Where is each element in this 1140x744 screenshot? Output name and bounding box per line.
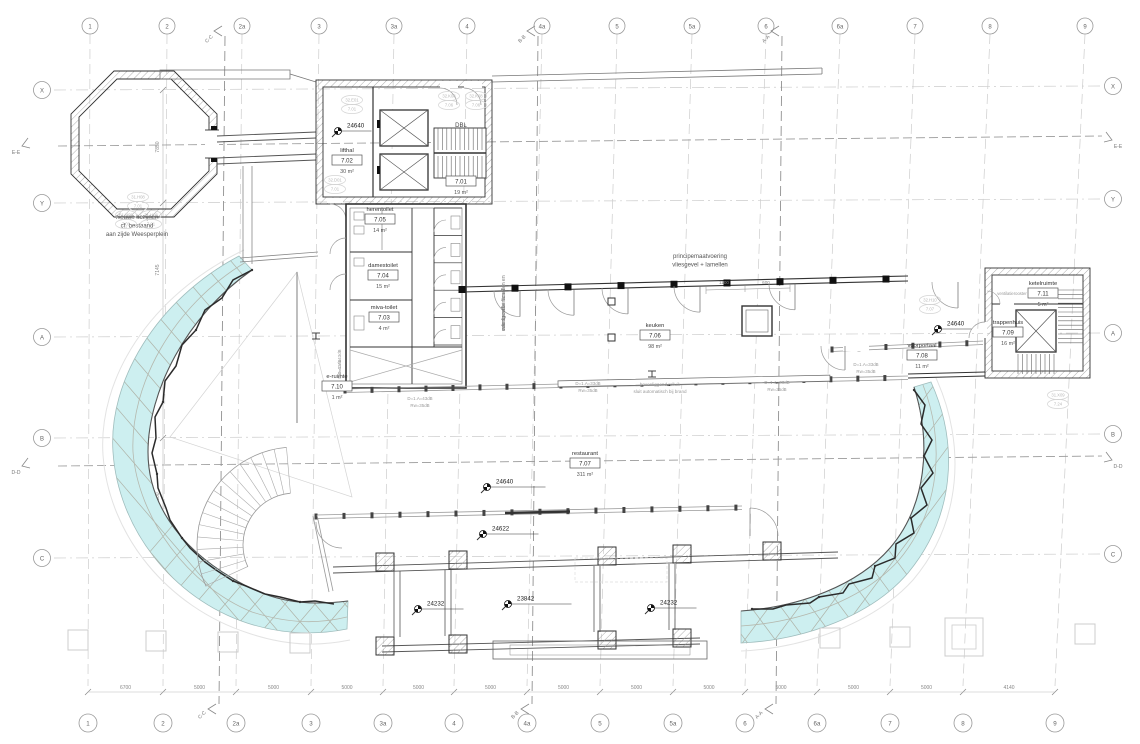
foundation-pad (218, 632, 238, 652)
floorplan-canvas: 11222a2a333a3a444a4a555a5a666a6a77889967… (0, 0, 1140, 744)
detail-marker: 24640 (932, 321, 972, 336)
room-code: 7.08 (916, 354, 928, 360)
dim-value: 5000 (194, 685, 205, 691)
mullion-tick (478, 384, 481, 390)
mullion-tick (650, 506, 653, 512)
door-arc (674, 286, 700, 312)
mullion-tick (482, 510, 485, 516)
marker-quadrant (487, 484, 491, 488)
tag-room: 7.06 (445, 103, 454, 108)
detail-marker: 23842 (502, 596, 572, 611)
grid-bubble-label: 2a (233, 721, 240, 728)
marker-quadrant (483, 531, 487, 535)
grid-bubble-label: 2 (161, 721, 165, 728)
grid-bubble-label: 7 (888, 721, 892, 728)
section-arrow (22, 138, 30, 148)
stair-tread (286, 447, 290, 493)
note-line: Rw=35dB (856, 369, 875, 374)
grid-bubble-label: 6a (837, 24, 844, 30)
marker-number: 23842 (517, 596, 535, 603)
grid-line-vertical (745, 34, 766, 686)
mullion-tick (505, 384, 508, 390)
tag-code: 32.K08 (469, 94, 483, 99)
dim-value: 4140 (1003, 685, 1014, 691)
section-arrow (1104, 452, 1112, 462)
note-line: D=1.A=33dB (575, 381, 600, 386)
note-line: Rw=35dB (410, 403, 429, 408)
stair-tread (262, 453, 277, 496)
grid-bubble-label: 5a (689, 24, 696, 30)
diagrid-line (280, 190, 700, 680)
mullion-tick (938, 341, 941, 347)
pavilion-column (763, 542, 781, 560)
diagrid-line (1000, 350, 1140, 700)
room-code: 7.02 (341, 159, 353, 165)
wall-column (512, 285, 519, 292)
marker-number: 24622 (492, 526, 510, 533)
mullion-tick (342, 513, 345, 519)
annotation-note: 600 (762, 280, 770, 285)
dim-value: 5000 (341, 685, 352, 691)
tag-room: 7.01 (147, 222, 156, 227)
section-arrow (22, 458, 30, 468)
note-line: 600 (762, 280, 770, 285)
grid-bubble-label: C (40, 556, 45, 562)
pavilion-column (376, 637, 394, 655)
dim-value: 5000 (775, 685, 786, 691)
grid-bubble-label: A (40, 335, 44, 341)
room-label: lifthal7.0230 m² (332, 148, 362, 175)
facade-node (874, 565, 876, 567)
detail-marker: 24622 (477, 526, 539, 541)
grid-bubble-label: 3a (391, 24, 398, 30)
stair-type-label: DBL (455, 123, 467, 129)
room-area: 1 m² (332, 395, 343, 401)
grid-bubble-label: 3a (380, 721, 387, 728)
marker-quadrant (651, 605, 655, 609)
section-label: E-E (1114, 144, 1123, 150)
finish-tag: 31.X097.24 (1048, 390, 1069, 408)
pavilion-column (598, 631, 616, 649)
room-code: 7.11 (1037, 292, 1049, 298)
mullion-tick (856, 376, 859, 382)
stair-tread (214, 490, 252, 516)
tag-room: 7.24 (1054, 402, 1063, 407)
grid-line-vertical (88, 34, 90, 686)
room-area: 30 m² (340, 169, 354, 175)
wall-column (830, 277, 837, 284)
note-line: sluit automatisch bij brand (633, 389, 687, 394)
room-name: trappenhuis (993, 320, 1023, 326)
grid-bubble-label: 8 (961, 721, 965, 728)
note-line: D=1.A=33dB (764, 380, 789, 385)
room-label: voorportaal7.0811 m² (907, 343, 937, 370)
facade-node (232, 580, 234, 582)
room-name: ketelruimte (1029, 281, 1057, 287)
finish-tag: 31.H087.01 (128, 192, 149, 210)
stair-tread (230, 472, 260, 506)
entry-opening (843, 343, 869, 351)
grid-bubble-label: 4a (539, 24, 546, 30)
room-name: keuken (646, 323, 665, 329)
tag-room: 7.01 (134, 204, 143, 209)
room-area: 19 m² (454, 190, 468, 196)
note-line: Rw=43dB (337, 359, 342, 378)
section-line (776, 36, 782, 704)
marker-number: 24232 (660, 600, 678, 607)
room-code: 7.09 (1002, 331, 1014, 337)
room-label: keuken7.0698 m² (640, 323, 670, 350)
pavilion-columns (376, 542, 781, 655)
finish-tag: 32.K087.06 (466, 91, 487, 109)
grid-line-vertical (1055, 34, 1085, 686)
room-code: 7.01 (455, 180, 467, 186)
facade-node (910, 517, 912, 519)
tag-room: 7.07 (926, 307, 935, 312)
wall-column (565, 283, 572, 290)
section-label: D-D (1114, 464, 1123, 470)
section-label: B-B (517, 34, 528, 45)
room-code: 7.10 (331, 385, 343, 391)
floorplan-page: 11222a2a333a3a444a4a555a5a666a6a77889967… (0, 0, 1140, 744)
room-code: 7.03 (378, 316, 390, 322)
grid-line-horizontal (54, 199, 1100, 203)
annotation-note: D=1.A=43dBRw=43dB (337, 349, 342, 378)
facade-node (818, 596, 820, 598)
note-line: bovenliggend rolluik (640, 382, 681, 387)
foundation-pads (68, 618, 1095, 656)
tag-code: 31.H08 (144, 213, 158, 218)
foundation-pad (952, 625, 976, 649)
room-area: 311 m² (577, 472, 594, 478)
tag-code: 32.E01 (345, 98, 359, 103)
dim-value: 6700 (120, 685, 131, 691)
stair-tread (240, 464, 266, 502)
mullion-tick (883, 375, 886, 381)
kitchen-wing (459, 276, 959, 341)
foundation-pad (820, 628, 840, 648)
grid-bubble-label: X (1111, 84, 1115, 90)
grid-bubble-label: 5 (598, 721, 602, 728)
pavilion-column (673, 545, 691, 563)
dim-value: 7145 (155, 264, 161, 275)
diagrid-line (0, 190, 200, 680)
pavilion-column (449, 635, 467, 653)
facade-node (251, 269, 253, 271)
wall-column (618, 282, 625, 289)
mullion-tick (370, 387, 373, 393)
section-arrow (765, 704, 773, 714)
stair-tread (203, 513, 246, 528)
facade-node (156, 473, 158, 475)
mullion-tick (884, 344, 887, 350)
section-arrow (521, 704, 529, 714)
octagon-tower (71, 71, 219, 217)
dim-value: 7850 (155, 141, 161, 152)
tag-code: 31.X09 (1051, 393, 1065, 398)
finish-tags: 31.H087.0131.H087.0131.H087.0132.K087.06… (116, 91, 1069, 408)
mullion-tick (965, 340, 968, 346)
marker-number: 24232 (427, 601, 445, 608)
grid-bubble-label: C (1111, 552, 1116, 558)
section-arrow (1104, 132, 1112, 142)
room-area: 4 m² (379, 326, 390, 332)
toilet-block (330, 204, 466, 388)
grid-bubble-label: 2a (239, 24, 246, 30)
pavilion-column (673, 629, 691, 647)
tag-room: 7.01 (348, 107, 357, 112)
grid-bubble-label: 6 (743, 721, 747, 728)
grid-bubble-label: Y (40, 201, 44, 207)
room-label: restaurant7.07311 m² (570, 451, 600, 478)
mullion-tick (706, 505, 709, 511)
stair-tread (221, 480, 256, 510)
room-area: 11 m² (915, 364, 929, 370)
door-arc (548, 289, 574, 315)
annotation-note: D=1.A=43dBRw=35dB (407, 396, 432, 408)
annotation-note: 1100 (719, 280, 729, 285)
grid-bubble-label: 1 (86, 721, 90, 728)
section-arrow (214, 26, 222, 36)
stair-stringer (243, 493, 290, 567)
restaurant-south-doors (313, 508, 778, 592)
grid-line-vertical (673, 34, 692, 686)
room-name: voorportaal (907, 343, 936, 349)
room-code: 7.04 (377, 274, 389, 280)
tower-door-opening (205, 130, 219, 158)
annotation-note: bovenliggend rolluiksluit automatisch bi… (633, 382, 687, 394)
dim-value: 5000 (485, 685, 496, 691)
grid-line-horizontal (54, 333, 1100, 337)
note-line: D=1.A=43dB (407, 396, 432, 401)
note-line: aan zijde Weesperplein (106, 232, 168, 238)
pavilion-column (449, 551, 467, 569)
dim-value: 5000 (268, 685, 279, 691)
annotation-note: D=1.A=33dBRw=35dB (853, 362, 878, 374)
dim-value: 5000 (413, 685, 424, 691)
diagrid-line (590, 350, 850, 700)
note-line: principemaatvoering (673, 254, 727, 260)
dim-value: 5000 (558, 685, 569, 691)
mullion-tick (370, 512, 373, 518)
detail-marker: 24640 (332, 123, 372, 138)
grid-bubble-label: 5a (670, 721, 677, 728)
door-arc (769, 284, 795, 310)
diagrid-line (940, 350, 1140, 700)
grid-line-vertical (600, 34, 617, 686)
foundation-pad (945, 618, 983, 656)
room-code: 7.06 (649, 334, 661, 340)
detail-marker: 24232 (645, 600, 697, 615)
mullion-tick (426, 511, 429, 517)
wall-segment (505, 512, 570, 514)
annotation-note: nieuwe kozijnencf. bestaandaan zijde Wee… (106, 215, 168, 238)
grid-bubble-label: X (40, 88, 44, 94)
grid-bubble-label: A (1111, 331, 1115, 337)
tag-room: 7.01 (331, 187, 340, 192)
room-name: herentoilet (366, 207, 393, 213)
section-label: A-A (761, 34, 772, 45)
grid-bubble-label: 9 (1053, 721, 1057, 728)
mullion-tick (398, 512, 401, 518)
dumbwaiter (742, 306, 772, 336)
note-line: 1100 (719, 280, 729, 285)
stair-tread (207, 501, 248, 522)
mullion-tick (397, 386, 400, 392)
room-name: damestoilet (368, 263, 398, 269)
mullion-tick (451, 385, 454, 391)
room-area: 14 m² (373, 228, 387, 234)
dim-value: 5000 (703, 685, 714, 691)
room-code: 7.07 (579, 462, 591, 468)
grid-bubble-label: 4a (524, 721, 531, 728)
wall-column (459, 286, 466, 293)
finish-tag: 32.E017.01 (342, 95, 363, 113)
section-arrow (208, 704, 216, 714)
grid-bubble-label: B (40, 436, 44, 442)
diagrid-line (850, 350, 1110, 700)
detail-marker: 24640 (481, 479, 546, 494)
room-name: lifthal (340, 148, 354, 154)
annotation-note: principemaatvoeringvliesgevel + lamellen (672, 254, 728, 269)
facade-node (751, 608, 753, 610)
marker-quadrant (508, 601, 512, 605)
tag-code: 32.D01 (328, 178, 342, 183)
mullion-tick (594, 508, 597, 514)
link-corridor (217, 132, 318, 264)
dim-value: 5000 (631, 685, 642, 691)
mullion-tick (831, 347, 834, 353)
room-name: restaurant (572, 451, 598, 457)
grid-bubble-label: Y (1111, 197, 1115, 203)
note-line: D=1.A=33dB (853, 362, 878, 367)
facade-node (299, 601, 301, 603)
grid-line-vertical (527, 34, 542, 686)
diagrid-line (820, 350, 1080, 700)
pavilion-column (598, 547, 616, 565)
mullion-tick (734, 505, 737, 511)
facade-node (923, 455, 925, 457)
mullion-tick (678, 506, 681, 512)
room-area: 15 m² (376, 284, 390, 290)
facade-node (181, 537, 183, 539)
section-label: C-C (197, 710, 208, 721)
marker-number: 24640 (496, 479, 514, 486)
marker-number: 24640 (347, 123, 365, 130)
facade-node (162, 401, 164, 403)
note-line: Rw=35dB (767, 387, 786, 392)
room-area: 16 m² (1001, 341, 1015, 347)
annotation-note: D=1.A=33dBRw=35dB (764, 380, 789, 392)
grid-bubble-label: B (1111, 432, 1115, 438)
note-line: over breedte (501, 303, 507, 331)
room-area: 98 m² (648, 344, 662, 350)
marker-quadrant (338, 128, 342, 132)
section-label: C-C (204, 34, 215, 45)
tag-room: 7.06 (472, 103, 481, 108)
foundation-pad (1075, 624, 1095, 644)
diagrid-line (500, 350, 760, 700)
mullion-tick (532, 383, 535, 389)
grid-line-horizontal (54, 554, 1100, 558)
tag-code: 31.H08 (131, 195, 145, 200)
grid-line-horizontal (54, 86, 1100, 90)
annotation-note: vliesgevel + lamellen eneventueel vertic… (501, 275, 507, 331)
marker-quadrant (418, 606, 422, 610)
dim-value: 5000 (848, 685, 859, 691)
room-code: 7.05 (374, 218, 386, 224)
mullion-zigzag (752, 390, 933, 609)
section-label: A-A (754, 710, 765, 721)
pavilion-column (376, 553, 394, 571)
finish-tag: 32.D017.01 (325, 175, 346, 193)
grid-bubble-label: 4 (452, 721, 456, 728)
room-label: 7.0119 m² (446, 176, 476, 196)
ventilation-label: ventilatierooster (997, 291, 1027, 296)
tag-code: 31.H08 (119, 213, 133, 218)
dim-value: 5000 (921, 685, 932, 691)
facade-node (913, 389, 915, 391)
tag-code: 32.K08 (442, 94, 456, 99)
tag-room: 7.01 (122, 222, 131, 227)
wall-column (883, 276, 890, 283)
room-name: miva-toilet (371, 305, 398, 311)
mullion-tick (424, 386, 427, 392)
note-line: Rw=35dB (578, 388, 597, 393)
diagrid-line (730, 350, 990, 700)
section-label: D-D (12, 470, 21, 476)
grid-bubble-label: 3 (309, 721, 313, 728)
marker-quadrant (938, 326, 942, 330)
foundation-pad (890, 627, 910, 647)
mullion-tick (454, 511, 457, 517)
marker-number: 24640 (947, 321, 965, 328)
wall-column (777, 278, 784, 285)
foundation-pad (68, 630, 88, 650)
mullion-tick (622, 507, 625, 513)
facade-node (195, 329, 197, 331)
grid-bubble-label: 6a (814, 721, 821, 728)
section-label: E-E (12, 150, 21, 156)
room-area: 5 m² (1038, 302, 1049, 308)
note-line: vliesgevel + lamellen (672, 263, 728, 269)
tag-code: 32.H10 (923, 298, 937, 303)
